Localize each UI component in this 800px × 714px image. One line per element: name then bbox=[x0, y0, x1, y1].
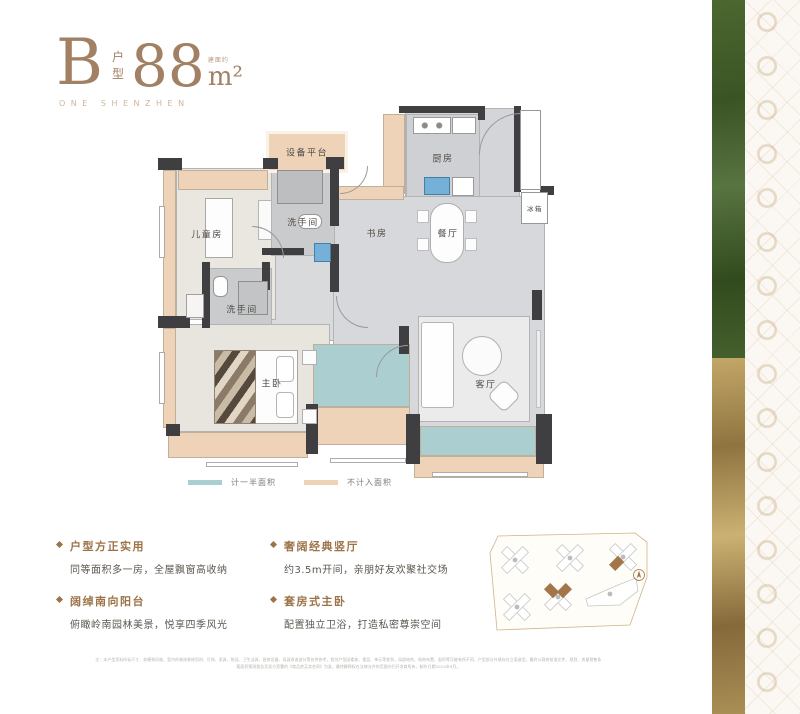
pw bbox=[330, 168, 339, 226]
chair bbox=[417, 238, 429, 251]
side-strip-green bbox=[712, 0, 745, 358]
pw bbox=[330, 244, 339, 292]
room-label: 洗手间 bbox=[226, 303, 258, 316]
bed-blanket bbox=[214, 350, 256, 424]
legend: 计一半面积不计入面积 bbox=[188, 477, 420, 488]
stove bbox=[413, 117, 451, 134]
balcony-right-teal bbox=[420, 426, 536, 456]
legend-label: 计一半面积 bbox=[231, 477, 276, 488]
window bbox=[432, 472, 528, 477]
site-plan-diagram bbox=[488, 515, 678, 650]
diamond-bullet-icon bbox=[56, 596, 63, 603]
shower-top bbox=[277, 170, 323, 204]
pw bbox=[532, 290, 542, 320]
disclaimer-line-1: 注：本户型资料所标尺寸、软硬装风格、室内的装饰装修用材、灯饰、家具、陈设、卫生洁… bbox=[70, 656, 627, 663]
feature-heading: 套房式主卧 bbox=[284, 593, 448, 609]
room-label: 洗手间 bbox=[287, 216, 319, 229]
legend-swatch bbox=[188, 480, 222, 485]
chair bbox=[465, 210, 477, 223]
coffee-table bbox=[462, 336, 502, 376]
chair bbox=[465, 238, 477, 251]
room-label: 客厅 bbox=[475, 378, 496, 391]
feature-item: 户型方正实用同等面积多一房，全屋飘窗高收纳 bbox=[57, 538, 271, 576]
feature-heading: 阔绰南向阳台 bbox=[70, 593, 271, 609]
page: B 户型 88 建面约 m² ONE SHENZHEN 设备平台洗手间儿童房书房… bbox=[0, 0, 800, 714]
pillow bbox=[276, 392, 294, 418]
washer bbox=[186, 294, 204, 318]
feature-heading: 户型方正实用 bbox=[70, 538, 271, 554]
tv-bench bbox=[536, 330, 541, 408]
feature-desc: 约3.5m开间，亲朋好友欢聚社交场 bbox=[284, 561, 448, 576]
disclaimer: 注：本户型资料所标尺寸、软硬装风格、室内的装饰装修用材、灯饰、家具、陈设、卫生洁… bbox=[70, 656, 627, 671]
counter bbox=[452, 117, 476, 134]
toilet-master bbox=[213, 276, 228, 297]
feature-item: 套房式主卧配置独立卫浴，打造私密尊崇空间 bbox=[271, 593, 448, 631]
counter-x bbox=[452, 177, 474, 196]
diamond-bullet-icon bbox=[270, 541, 277, 548]
room-label: 儿童房 bbox=[191, 228, 223, 241]
room-label: 书房 bbox=[366, 227, 387, 240]
window bbox=[159, 206, 165, 258]
legend-swatch bbox=[304, 480, 338, 485]
pw bbox=[406, 414, 420, 464]
window bbox=[206, 462, 298, 467]
basin-blue bbox=[314, 243, 331, 262]
feature-desc: 配置独立卫浴，打造私密尊崇空间 bbox=[284, 616, 448, 631]
diamond-bullet-icon bbox=[56, 541, 63, 548]
room-label: 餐厅 bbox=[437, 227, 458, 240]
window bbox=[159, 352, 165, 404]
balcony-mid-tan bbox=[313, 407, 410, 445]
pw bbox=[478, 106, 485, 120]
room-label: 设备平台 bbox=[286, 146, 328, 159]
nightstand bbox=[302, 409, 317, 424]
pw bbox=[158, 158, 182, 170]
room-label: 厨房 bbox=[432, 152, 453, 165]
feature-desc: 同等面积多一房，全屋飘窗高收纳 bbox=[70, 561, 271, 576]
shaft bbox=[520, 110, 541, 190]
room-label: 主卧 bbox=[261, 377, 282, 390]
side-pattern bbox=[745, 0, 800, 714]
kitchen-cabinet bbox=[383, 114, 405, 194]
feature-item: 奢阔经典竖厅约3.5m开间，亲朋好友欢聚社交场 bbox=[271, 538, 448, 576]
feature-list: 户型方正实用同等面积多一房，全屋飘窗高收纳阔绰南向阳台俯瞰岭南园林美景，悦享四季… bbox=[57, 538, 448, 631]
window bbox=[330, 458, 406, 463]
disclaimer-line-2: 案面积预测报告及双方签署的《商品房买卖合同》为准，最终解释权在法律允许的范围内归… bbox=[70, 663, 627, 670]
chair bbox=[417, 210, 429, 223]
pw bbox=[166, 424, 180, 436]
sink-kitchen bbox=[424, 177, 450, 195]
sofa bbox=[421, 322, 454, 408]
pw bbox=[399, 106, 483, 113]
diamond-bullet-icon bbox=[270, 596, 277, 603]
feature-heading: 奢阔经典竖厅 bbox=[284, 538, 448, 554]
legend-item: 不计入面积 bbox=[304, 477, 392, 488]
bay-master-bottom bbox=[168, 432, 308, 458]
nightstand bbox=[302, 350, 317, 365]
feature-item: 阔绰南向阳台俯瞰岭南园林美景，悦享四季风光 bbox=[57, 593, 271, 631]
room-label: 冰箱 bbox=[527, 203, 543, 213]
side-strip-gold bbox=[712, 358, 745, 714]
legend-label: 不计入面积 bbox=[347, 477, 392, 488]
pw bbox=[536, 414, 552, 464]
legend-item: 计一半面积 bbox=[188, 477, 276, 488]
bay-kids-top bbox=[178, 170, 268, 190]
feature-desc: 俯瞰岭南园林美景，悦享四季风光 bbox=[70, 616, 271, 631]
pw bbox=[263, 158, 278, 169]
